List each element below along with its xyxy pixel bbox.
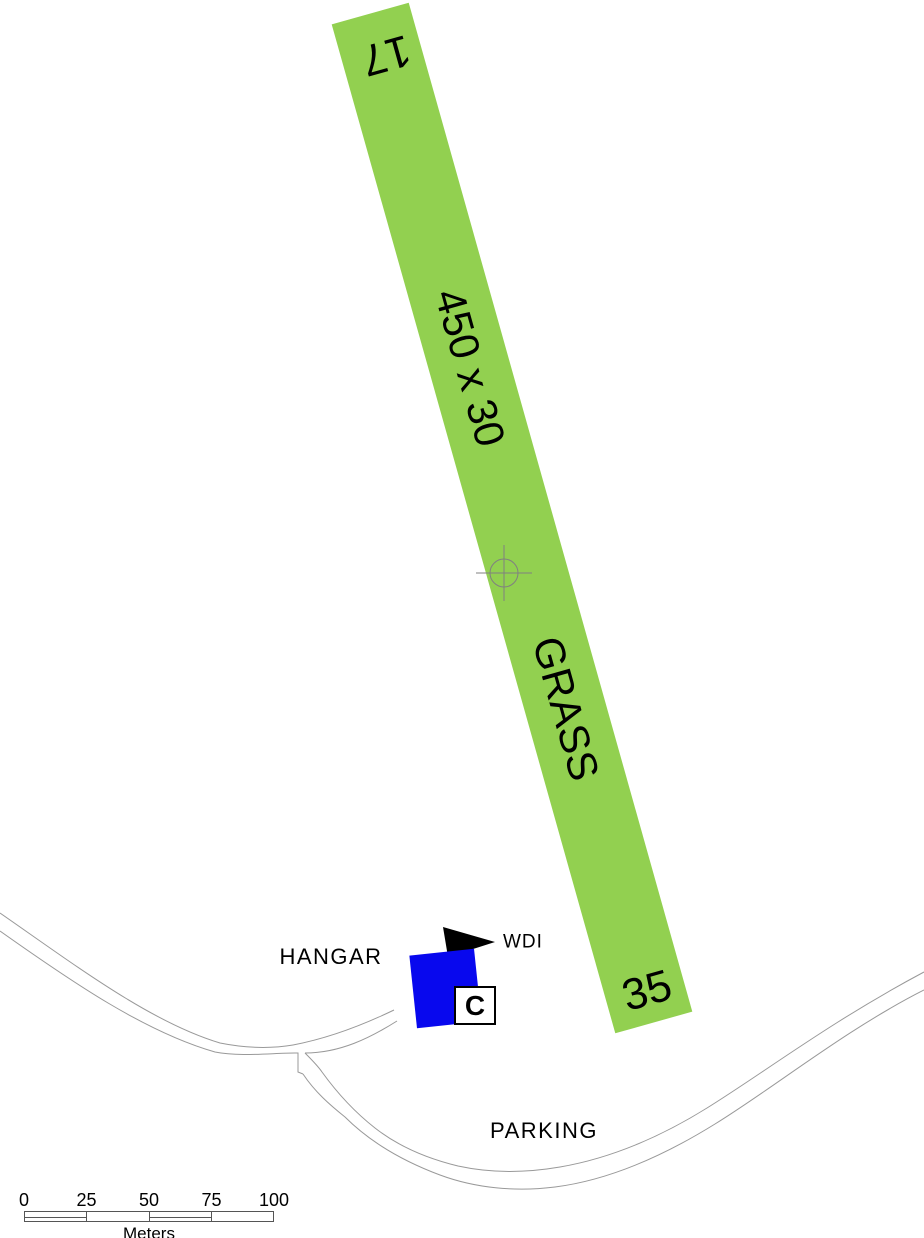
scale-tick-75: 75	[201, 1190, 221, 1211]
scale-tick-100: 100	[259, 1190, 289, 1211]
scale-bar-segment	[149, 1212, 211, 1221]
parking-road-inner-edge	[305, 972, 924, 1171]
c-marker-box: C	[454, 986, 496, 1025]
airfield-chart: 17 450 x 30 GRASS 35 C HANGAR WDI PARKIN…	[0, 0, 924, 1238]
scale-bar-segment	[86, 1212, 148, 1221]
scale-bar-tick-labels: 0 25 50 75 100	[24, 1190, 274, 1209]
parking-label: PARKING	[490, 1120, 598, 1142]
scale-tick-25: 25	[76, 1190, 96, 1211]
scale-unit-label: Meters	[24, 1224, 274, 1238]
road-to-hangar-lower-edge	[305, 1021, 397, 1053]
c-marker-label: C	[465, 990, 485, 1022]
scale-bar-rule	[24, 1211, 274, 1222]
scale-bar-segment	[25, 1212, 86, 1221]
roads-and-symbols-layer	[0, 0, 924, 1238]
scale-tick-50: 50	[139, 1190, 159, 1211]
parking-road-outer-edge	[303, 990, 924, 1189]
scale-bar-segment	[211, 1212, 273, 1221]
scale-tick-0: 0	[19, 1190, 29, 1211]
road-upper-edge	[0, 913, 394, 1047]
runway-reference-crosshair-icon	[476, 545, 532, 601]
scale-bar: 0 25 50 75 100 Meters	[24, 1190, 274, 1238]
hangar-label: HANGAR	[279, 946, 382, 968]
wdi-label: WDI	[503, 933, 543, 952]
road-lower-edge	[0, 931, 303, 1074]
